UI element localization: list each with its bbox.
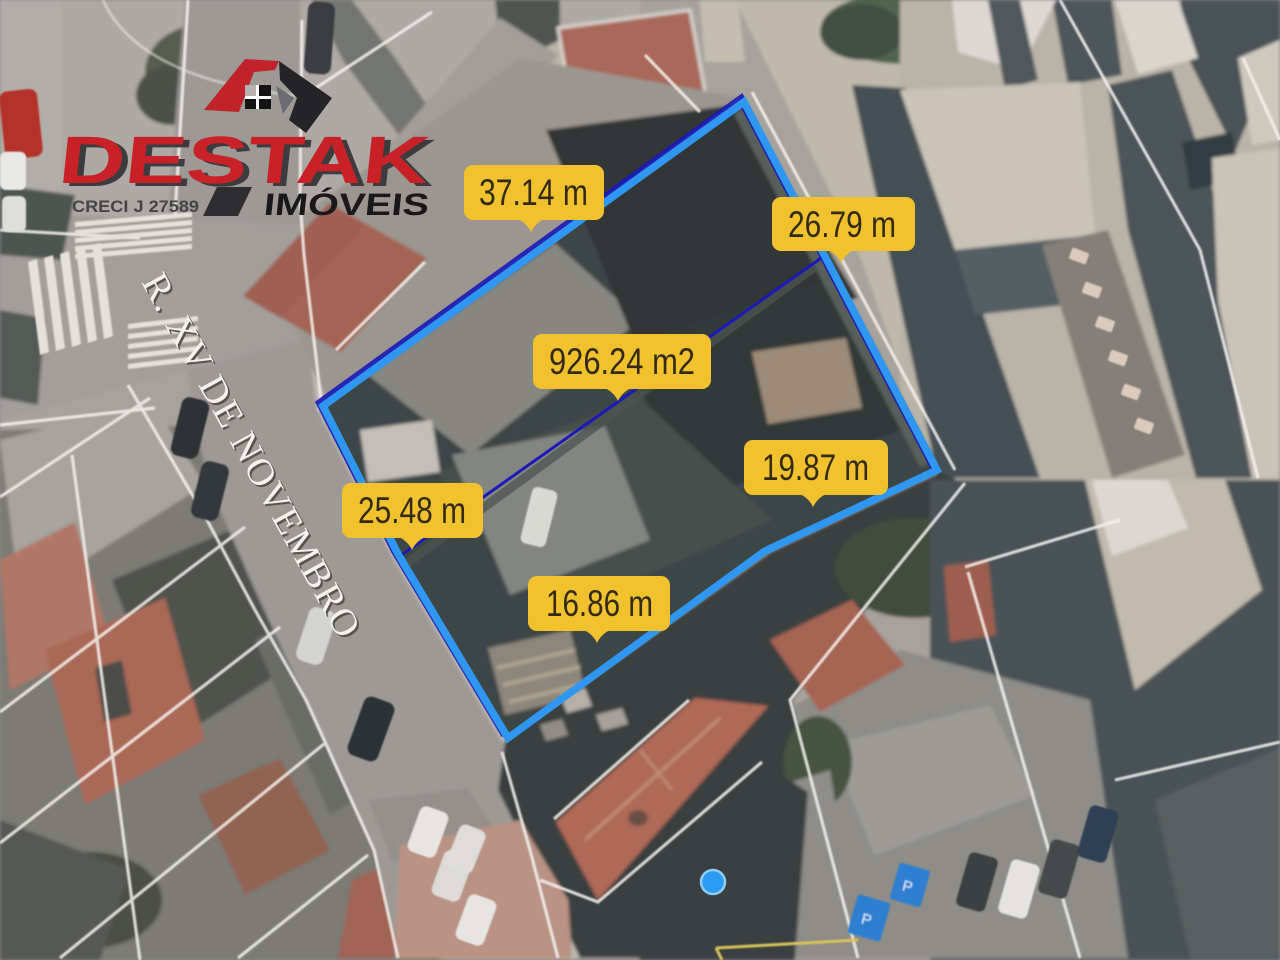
- svg-text:926.24 m2: 926.24 m2: [549, 341, 695, 382]
- svg-text:26.79 m: 26.79 m: [788, 204, 896, 245]
- svg-text:IMÓVEIS: IMÓVEIS: [262, 186, 431, 222]
- svg-text:CRECI J 27589: CRECI J 27589: [72, 197, 199, 216]
- svg-text:19.87 m: 19.87 m: [762, 447, 869, 488]
- svg-text:37.14 m: 37.14 m: [479, 172, 588, 213]
- svg-text:16.86 m: 16.86 m: [546, 583, 653, 624]
- svg-text:25.48 m: 25.48 m: [358, 490, 466, 531]
